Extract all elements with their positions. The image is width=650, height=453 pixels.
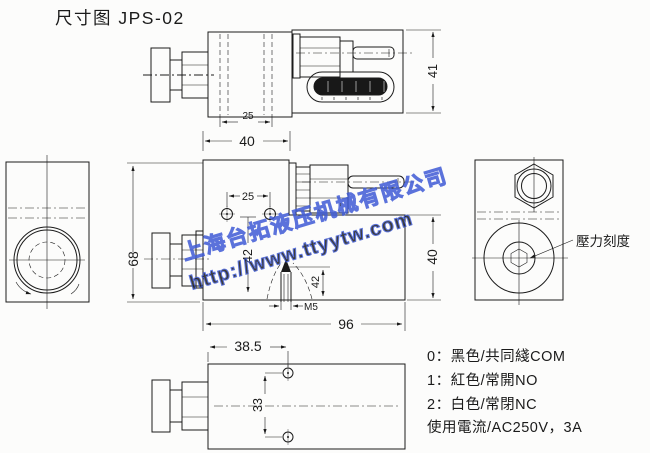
watermark: 上海台拓液压机械有限公司 http://www.ttyytw.com xyxy=(179,164,450,295)
page-title: 尺寸图 JPS-02 xyxy=(55,8,185,28)
dim-screw: 42 xyxy=(310,276,322,288)
rear-view: 壓力刻度 xyxy=(472,157,630,305)
dim-top-height: 41 xyxy=(426,64,440,78)
front-view xyxy=(6,155,89,309)
pressure-scale-leader xyxy=(530,240,573,258)
dim-bottom-hole-spacing: 33 xyxy=(251,398,265,412)
dim-offset: 38.5 xyxy=(234,338,261,354)
dim-top-slot: 25 xyxy=(242,111,254,122)
technical-drawing: 尺寸图 JPS-02 41 25 xyxy=(0,0,650,453)
scale-window-slot xyxy=(314,78,387,95)
dim-width: 96 xyxy=(338,316,354,332)
bottom-view: 33 38.5 xyxy=(152,338,405,449)
top-view: 41 25 40 xyxy=(143,30,441,151)
dim-housing-height: 40 xyxy=(424,249,440,265)
dim-height: 68 xyxy=(125,251,141,267)
legend-line-no: 1：紅色/常開NO xyxy=(427,372,538,389)
dimension-diagram-page: 尺寸图 JPS-02 41 25 xyxy=(0,0,650,453)
dim-thread: M5 xyxy=(304,302,318,313)
legend-line-nc: 2：白色/常閉NC xyxy=(427,396,537,413)
dim-top-body: 40 xyxy=(239,133,255,149)
wiring-legend: 0：黑色/共同綫COM 1：紅色/常開NO 2：白色/常閉NC 使用電流/AC2… xyxy=(427,348,582,436)
legend-line-com: 0：黑色/共同綫COM xyxy=(427,348,565,365)
dim-hole-spacing: 25 xyxy=(242,191,254,203)
legend-line-rating: 使用電流/AC250V，3A xyxy=(427,419,582,436)
pressure-scale-label: 壓力刻度 xyxy=(576,234,630,249)
